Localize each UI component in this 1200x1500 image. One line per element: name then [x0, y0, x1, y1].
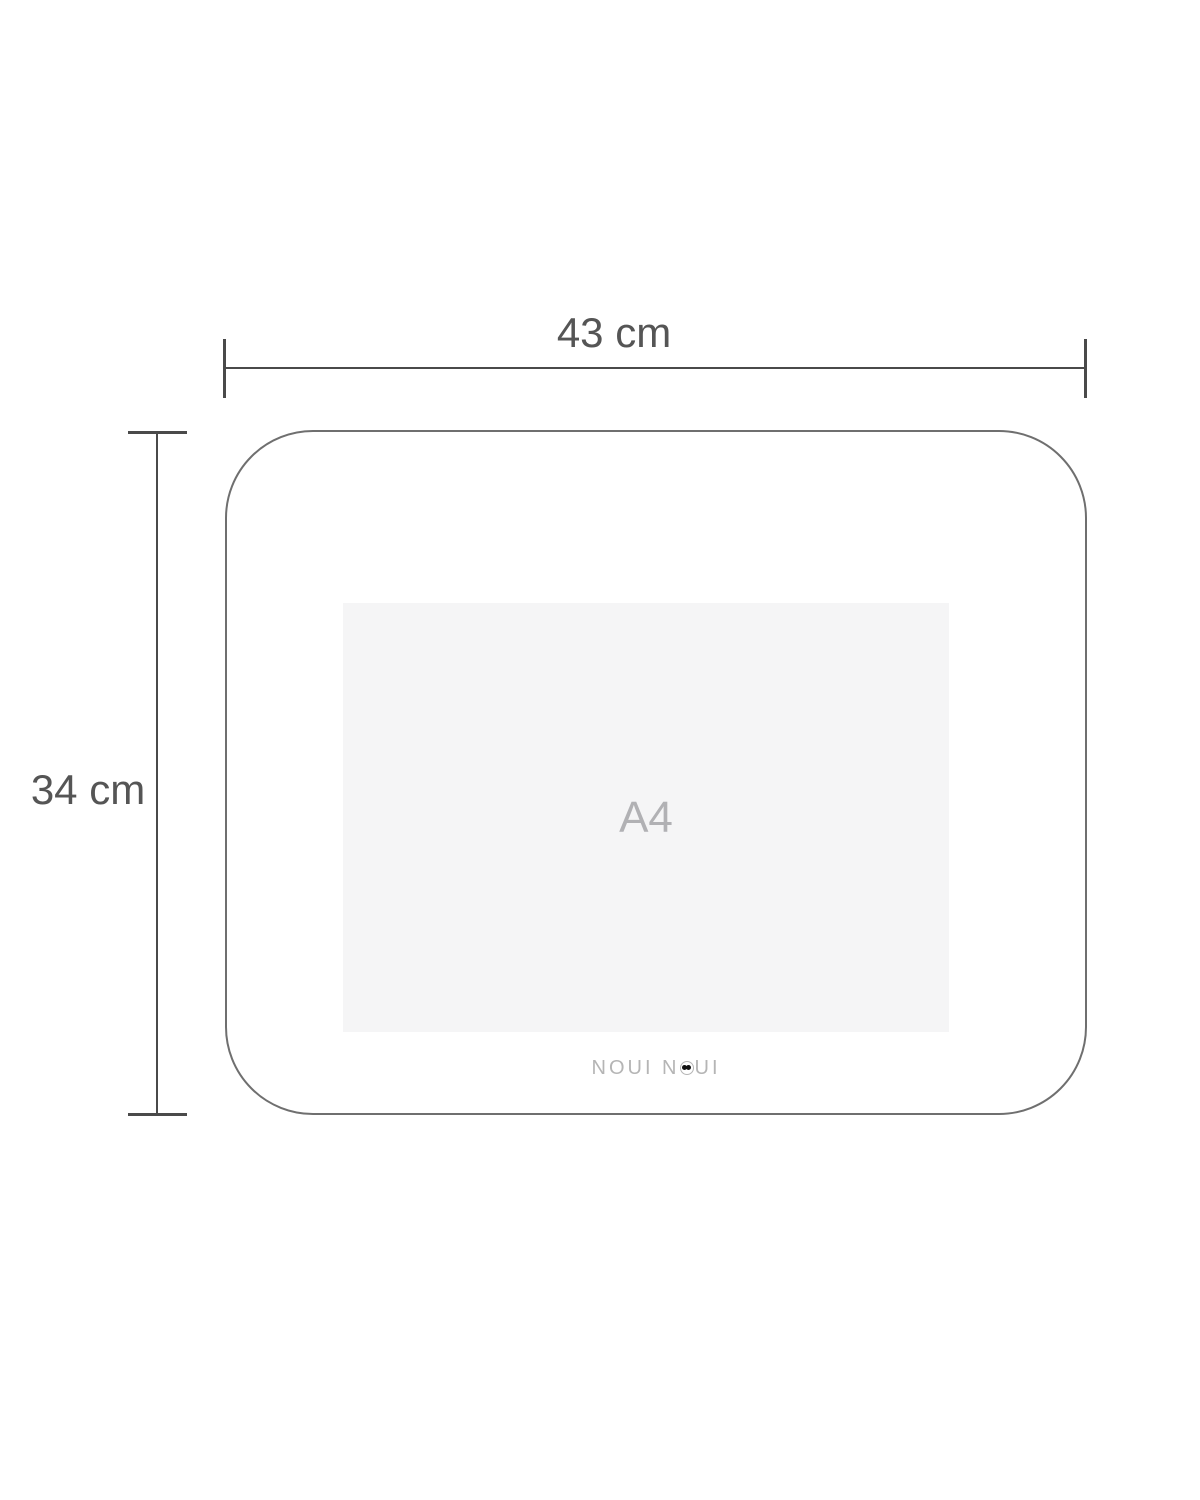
width-dimension-right-tick [1084, 339, 1087, 398]
brand-logo-text-left: NOUI N [592, 1057, 680, 1079]
height-dimension-line [156, 433, 158, 1115]
a4-label: A4 [619, 796, 673, 840]
width-dimension-left-tick [223, 339, 226, 398]
a4-size-reference: A4 [343, 603, 949, 1032]
width-dimension-label: 43 cm [557, 312, 671, 354]
height-dimension-top-tick [128, 431, 187, 434]
brand-logo-text-right: UI [695, 1057, 721, 1079]
logo-right-eye-icon [686, 1065, 691, 1070]
height-dimension-label: 34 cm [31, 769, 145, 811]
brand-logo-eyes-o-icon [680, 1061, 694, 1075]
brand-logo: NOUI NUI [227, 1058, 1085, 1078]
placemat-outline: A4 NOUI NUI [225, 430, 1087, 1115]
height-dimension-bottom-tick [128, 1113, 187, 1116]
width-dimension-line [225, 367, 1087, 369]
placemat-dimension-diagram: 43 cm 34 cm A4 NOUI NUI [0, 0, 1200, 1500]
